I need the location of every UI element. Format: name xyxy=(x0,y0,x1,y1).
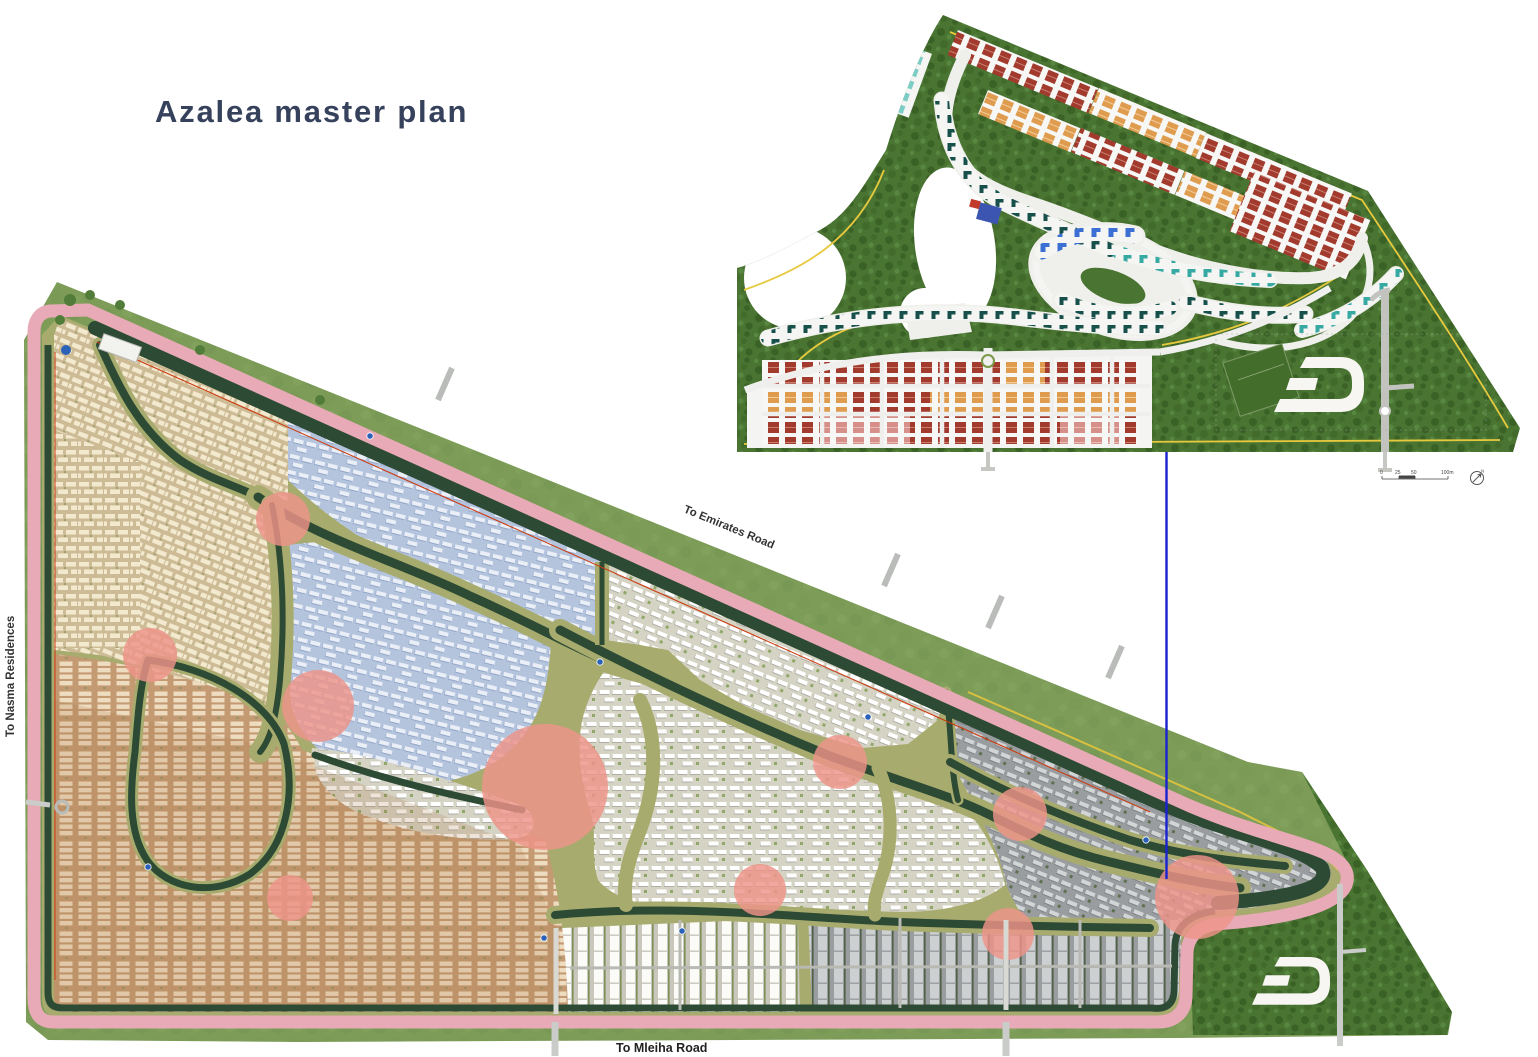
svg-text:0: 0 xyxy=(1380,470,1383,476)
svg-text:50: 50 xyxy=(1411,470,1417,476)
svg-text:To Mleiha Road: To Mleiha Road xyxy=(616,1041,707,1055)
svg-text:To Nasma Residences: To Nasma Residences xyxy=(5,616,17,737)
svg-text:N: N xyxy=(1481,469,1484,474)
svg-text:100m: 100m xyxy=(1441,470,1454,476)
svg-text:25: 25 xyxy=(1395,470,1401,476)
svg-text:Azalea master plan: Azalea master plan xyxy=(155,94,468,129)
